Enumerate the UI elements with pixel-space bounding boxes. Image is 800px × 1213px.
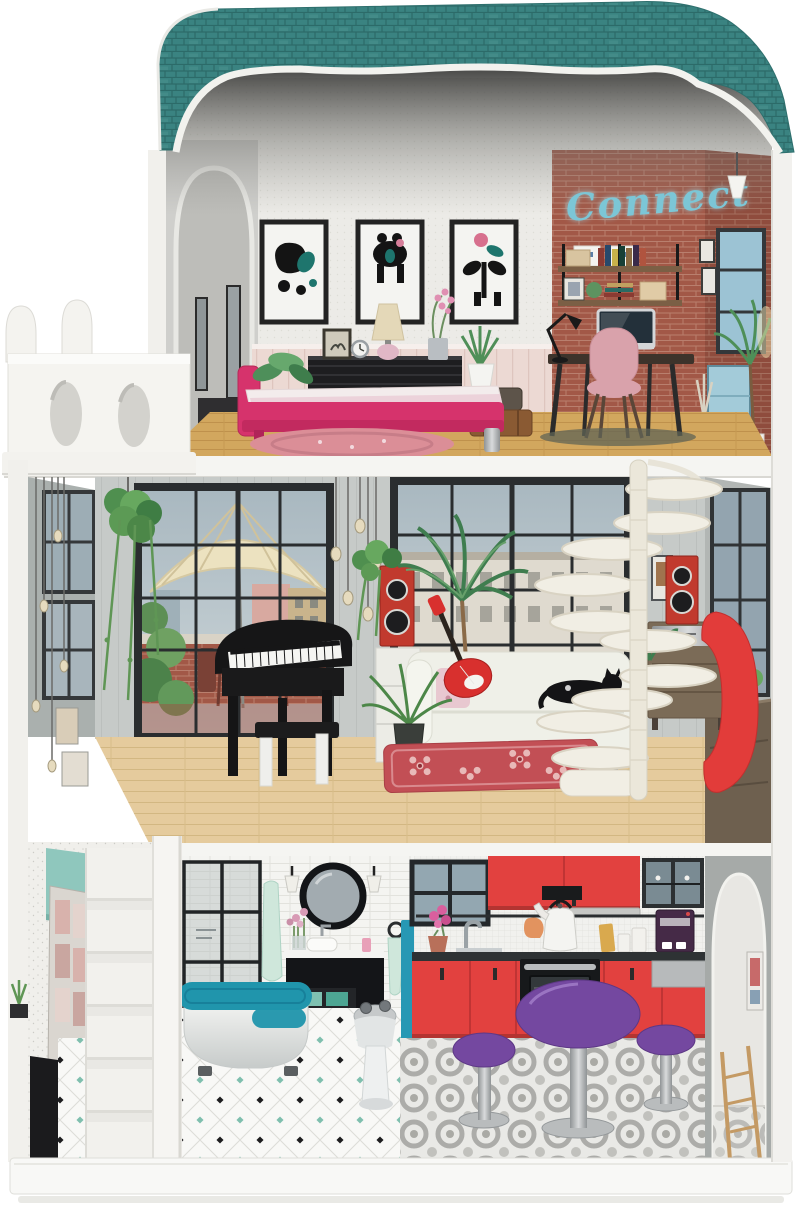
coffee-machine [656, 910, 694, 952]
speaker-left [380, 566, 414, 646]
dollhouse-photo: Connect Connect [0, 0, 800, 1213]
small-frame [702, 268, 716, 294]
balcony-post [62, 300, 92, 356]
shelf-plant [586, 282, 602, 298]
shelf-board [558, 300, 682, 306]
left-exterior-wall [8, 460, 28, 1162]
tall-mirror [196, 298, 207, 390]
small-poster [56, 708, 78, 744]
support-column [152, 836, 182, 1162]
spiral-bottom-step [560, 770, 638, 796]
oven-mitt [524, 918, 544, 939]
black-panel [30, 1056, 58, 1162]
books-row [598, 245, 646, 266]
dollhouse-illustration: Connect Connect [0, 0, 800, 1213]
small-frame [700, 240, 714, 262]
round-mirror [303, 866, 363, 926]
silver-drawer [652, 961, 706, 987]
mint-towel [262, 881, 282, 981]
ground-floor [10, 836, 772, 1162]
glass-cabinet [642, 858, 704, 908]
balcony-rail [8, 354, 190, 458]
bed-leg [484, 428, 500, 452]
soap-bottle [362, 938, 371, 952]
side-staircase [86, 848, 152, 1162]
balcony-slab [2, 452, 196, 476]
cutting-board [599, 923, 616, 952]
vessel-sink [307, 938, 337, 951]
cooktop-panel [542, 886, 582, 900]
alarm-clock [352, 341, 368, 357]
folded-towels [326, 992, 348, 1006]
art-frame-1 [262, 222, 326, 322]
small-poster [62, 752, 88, 786]
office-rug [540, 428, 696, 446]
shelf-board [558, 266, 682, 272]
kitchen [400, 856, 710, 1162]
top-floor: Connect Connect [2, 70, 792, 478]
photo-frame [324, 330, 350, 358]
art-frame-3 [452, 222, 516, 322]
speaker-right [666, 556, 698, 624]
arched-doorway [705, 856, 772, 1162]
bedroom-rug [250, 428, 454, 460]
jar [632, 928, 646, 952]
basket [566, 250, 590, 266]
ground-shadow [18, 1196, 784, 1203]
basket [640, 282, 666, 300]
right-exterior-wall [772, 150, 792, 1162]
jar [618, 934, 630, 952]
base-platform [10, 1158, 792, 1203]
spiral-pole [630, 460, 647, 800]
